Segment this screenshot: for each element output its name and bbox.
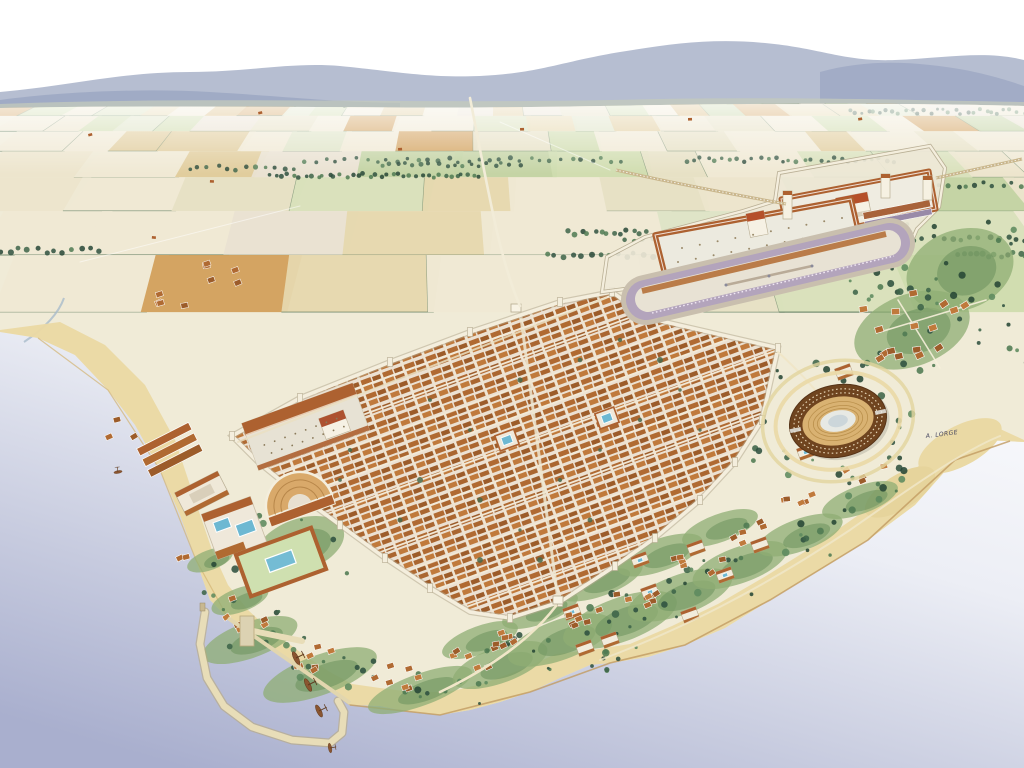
city-reconstruction-illustration: A. LORGE (0, 0, 1024, 768)
mole-tower (200, 603, 205, 611)
illustration-page: A. LORGE (0, 0, 1024, 768)
pier-head (240, 616, 254, 646)
